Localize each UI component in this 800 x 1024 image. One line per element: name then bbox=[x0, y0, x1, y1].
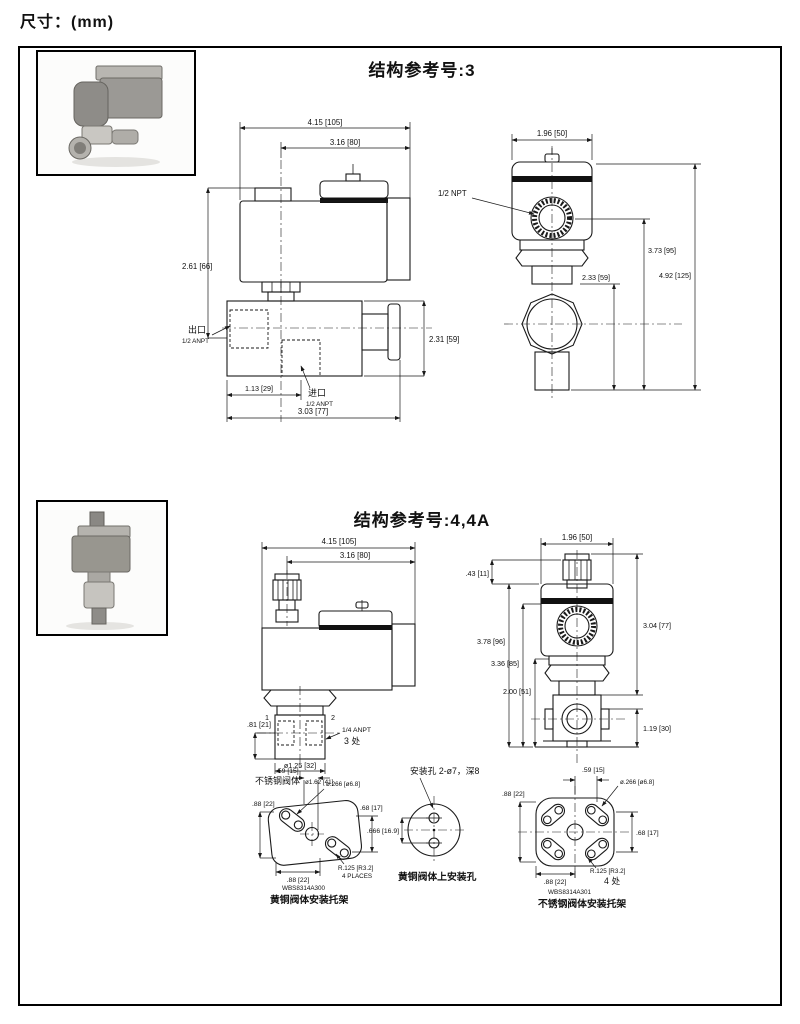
dim-coil-width: 3.16 [80] bbox=[340, 551, 370, 560]
body-holes-caption: 黄铜阀体上安装孔 bbox=[398, 870, 477, 883]
s4-front-dimensions: .43 [11] 3.78 [96] 3.36 [85] 2.00 [51] 3… bbox=[466, 554, 671, 747]
dim-h4: 3.04 [77] bbox=[643, 621, 671, 630]
dim-total-width: 4.15 [105] bbox=[322, 537, 357, 546]
dim-hole: ø.266 [ø6.8] bbox=[326, 781, 360, 788]
dim-front-width: 1.96 [50] bbox=[562, 533, 592, 542]
dim-inlet-offset: 1.13 [29] bbox=[245, 384, 273, 393]
dim-h3: 2.00 [51] bbox=[503, 687, 531, 696]
dim-body-length: 3.03 [77] bbox=[298, 407, 328, 416]
ports-count-label: 3 处 bbox=[344, 735, 360, 746]
section3-drawing: 4.15 [105] 3.16 [80] 2.61 [66] bbox=[182, 100, 702, 440]
dim-total-height: 4.92 [125] bbox=[659, 271, 691, 280]
section4-drawing: 4.15 [105] 3.16 [80] bbox=[247, 526, 692, 788]
content-frame: 结构参考号:3 4.15 [105] 3.16 [80] 2.61 [66] bbox=[18, 46, 782, 1006]
dim-radius-note: 4 处 bbox=[604, 875, 620, 886]
valve-photo-ref4-image bbox=[38, 502, 166, 634]
dim-right: .68 [17] bbox=[360, 805, 383, 812]
s4-front-valve-outline: 1.96 [50] bbox=[531, 533, 639, 766]
dim-h5: 1.19 [30] bbox=[643, 724, 671, 733]
s4-ports-callout: 1 2 1/4 ANPT 3 处 bbox=[265, 713, 371, 746]
port2-label: 2 bbox=[331, 713, 335, 722]
brass-bracket-caption: 黄铜阀体安装托架 bbox=[270, 893, 349, 906]
units-label: 尺寸：(mm) bbox=[20, 8, 114, 32]
ss-bracket-caption: 不锈钢阀体安装托架 bbox=[538, 897, 626, 910]
dim-radius: R.125 [R3.2] bbox=[338, 865, 374, 872]
dim-total-width: 4.15 [105] bbox=[308, 118, 343, 127]
s3-side-bottom-dimensions: 1.13 [29] 3.03 [77] 2.31 [59] bbox=[227, 301, 459, 422]
s3-outlet-callout: 出口 1/2 ANPT bbox=[182, 324, 230, 345]
dim-radius-note: 4 PLACES bbox=[342, 873, 372, 880]
part-number: WBS8314A301 bbox=[548, 889, 592, 896]
valve-photo-ref4 bbox=[36, 500, 168, 636]
mounting-brackets-drawing: .59 [15] ø.266 [ø6.8] .88 [22] .68 [17] … bbox=[252, 760, 682, 912]
s3-side-valve-outline bbox=[222, 160, 432, 422]
s3-front-dimensions: 2.33 [59] 3.73 [95] 4.92 [125] bbox=[571, 164, 701, 390]
section3-title: 结构参考号:3 bbox=[262, 56, 582, 81]
valve-photo-ref3 bbox=[36, 50, 196, 176]
valve-photo-ref3-image bbox=[38, 52, 194, 174]
dim-right: .68 [17] bbox=[636, 830, 659, 837]
conduit-label: 1/2 NPT bbox=[438, 189, 467, 198]
dim-port-height: .81 [21] bbox=[247, 720, 271, 729]
dim-hole-spacing: .666 [16.9] bbox=[367, 828, 399, 835]
dim-front-width: 1.96 [50] bbox=[537, 129, 567, 138]
dim-hole: ø.266 [ø6.8] bbox=[620, 779, 654, 786]
s3-inlet-callout: 进口 1/2 ANPT bbox=[301, 366, 333, 408]
dim-body-height: 2.31 [59] bbox=[429, 335, 459, 344]
body-holes-outline bbox=[404, 796, 464, 864]
s4-side-valve-outline bbox=[257, 570, 415, 778]
dim-bottom: .88 [22] bbox=[287, 877, 310, 884]
s3-conduit-callout: 1/2 NPT bbox=[438, 189, 534, 214]
dim-h1: 3.78 [96] bbox=[477, 637, 505, 646]
s3-side-dimensions: 4.15 [105] 3.16 [80] 2.61 [66] bbox=[182, 118, 410, 338]
ports-size-label: 1/4 ANPT bbox=[342, 727, 371, 734]
dim-left: .88 [22] bbox=[252, 801, 275, 808]
brass-bracket-outline bbox=[267, 799, 363, 866]
dim-nut-height: 2.33 [59] bbox=[582, 273, 610, 282]
dim-coil-width: 3.16 [80] bbox=[330, 138, 360, 147]
dim-top: .59 [15] bbox=[582, 767, 605, 774]
part-number: WBS8314A300 bbox=[282, 885, 326, 892]
dim-h2: 3.36 [85] bbox=[491, 659, 519, 668]
dim-bottom: .88 [22] bbox=[544, 879, 567, 886]
body-holes-dimensions: 安装孔 2-ø7，深8 .666 [16.9] 黄铜阀体上安装孔 bbox=[367, 765, 480, 883]
dim-coil-height: 2.61 [66] bbox=[182, 262, 212, 271]
holes-label: 安装孔 2-ø7，深8 bbox=[410, 765, 480, 776]
dim-left: .88 [22] bbox=[502, 791, 525, 798]
dim-knob-height: .43 [11] bbox=[466, 569, 489, 578]
inlet-label: 进口 bbox=[308, 388, 326, 398]
dim-top: .59 [15] bbox=[276, 768, 299, 775]
outlet-label: 出口 bbox=[188, 324, 206, 335]
dim-port-height: 3.73 [95] bbox=[648, 246, 676, 255]
outlet-size-label: 1/2 ANPT bbox=[182, 338, 209, 345]
s3-front-valve-outline: 1.96 [50] bbox=[504, 129, 682, 400]
ss-bracket-outline bbox=[518, 786, 632, 878]
dim-radius: R.125 [R3.2] bbox=[590, 868, 626, 875]
